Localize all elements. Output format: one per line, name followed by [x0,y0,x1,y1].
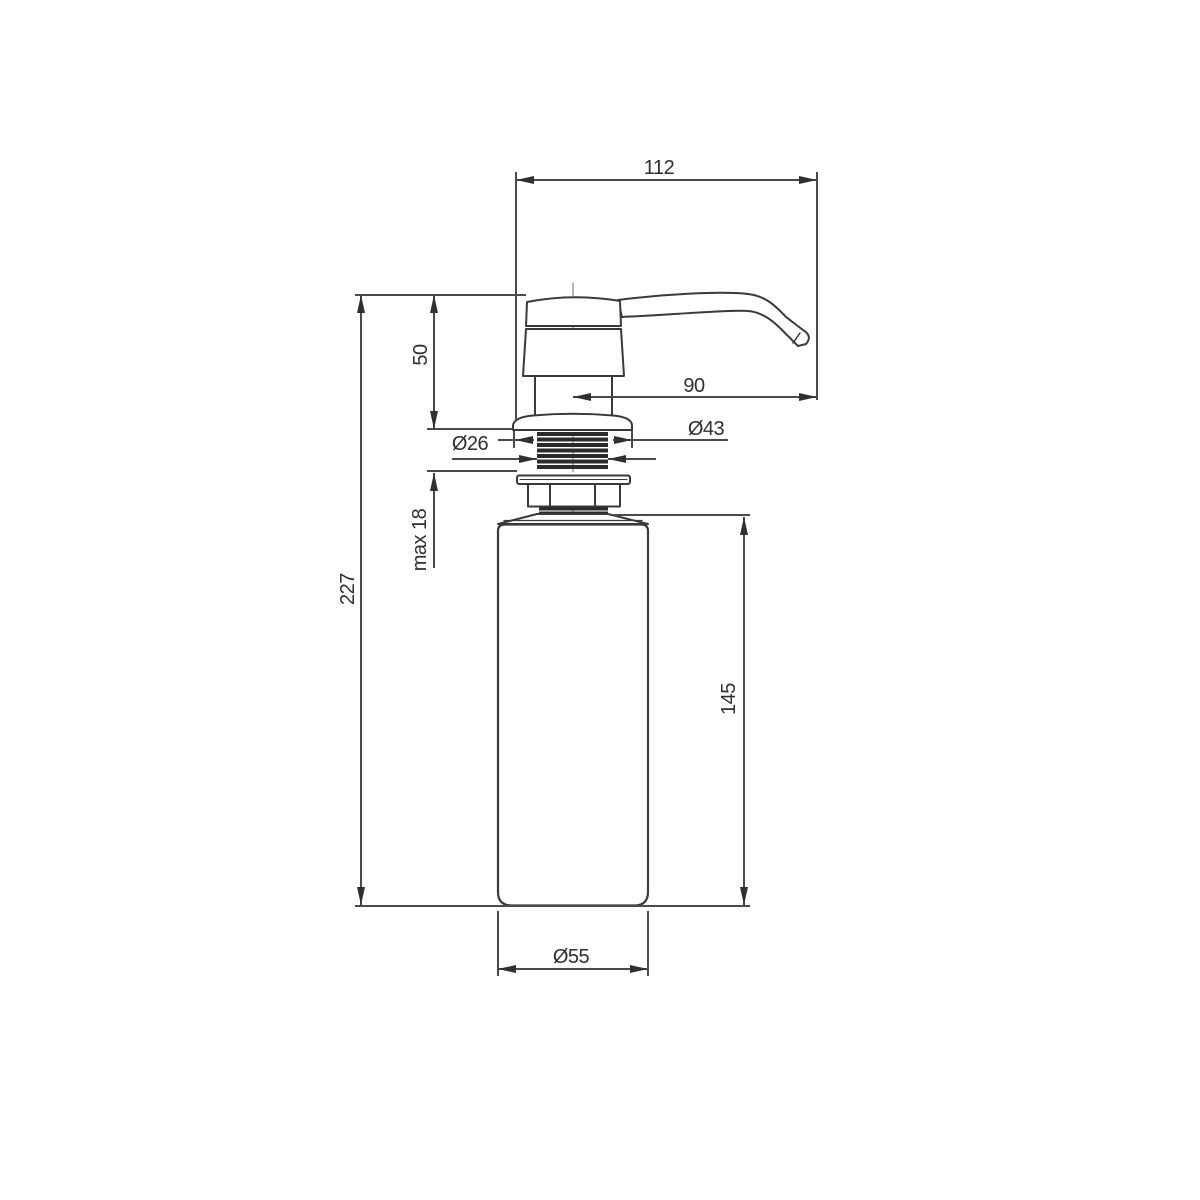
dim-55-line [498,968,648,970]
dim-112-extension-right [816,172,818,400]
dim-50-line [433,295,435,429]
dim-145-line [743,517,745,905]
dim-26-arrow-left [519,455,537,463]
pump-head-cap-lower [523,329,624,376]
dim-112-arrow-right [799,176,817,184]
dim-43-arrow-right [614,436,632,444]
dim-227-extension-bottom [355,905,750,907]
dim-227-line [360,295,362,905]
dim-112-arrow-left [516,176,534,184]
threads-upper [537,432,608,469]
dim-max18-arrow-top [430,473,438,491]
dim-145-arrow-bottom [740,887,748,905]
bottle-body [498,525,648,906]
top-flange [513,414,632,430]
dim-max18-extension-top [427,470,517,472]
dim-50-extension-bottom [427,428,513,430]
dim-227-label: 227 [338,573,358,605]
dim-55-label: Ø55 [553,947,589,967]
dim-50-label: 50 [411,344,431,365]
dim-26-arrow-right [608,455,626,463]
dim-90-arrow-left [573,393,591,401]
dim-55-arrow-right [630,965,648,973]
spout [618,293,809,346]
dim-90-arrow-right [799,393,817,401]
dim-43-extension-left [513,431,515,448]
dim-145-arrow-top [740,517,748,535]
dim-50-arrow-top [430,295,438,313]
dim-227-arrow-top [357,295,365,313]
dim-43-label: Ø43 [688,419,724,439]
dim-145-extension-top [610,514,750,516]
pump-head-cap-upper [526,297,621,326]
dim-55-arrow-left [498,965,516,973]
dim-50-arrow-bottom [430,411,438,429]
dim-26-label: Ø26 [452,434,488,454]
dim-112-extension-left [515,172,517,420]
dim-227-arrow-bottom [357,887,365,905]
soap-dispenser-technical-drawing: 112 227 50 max 18 90 Ø43 Ø26 145 Ø55 [0,0,1200,1200]
dim-227-extension-top [355,294,526,296]
hex-locknut [528,484,620,507]
dim-145-label: 145 [719,683,739,715]
dim-max18-label: max 18 [410,509,430,572]
dim-90-label: 90 [683,376,704,396]
bottle-shoulder [498,514,648,524]
dim-112-line [516,179,817,181]
dim-43-extension-right [631,431,633,448]
dim-112-label: 112 [644,158,674,178]
dim-43-arrow-left [515,436,533,444]
